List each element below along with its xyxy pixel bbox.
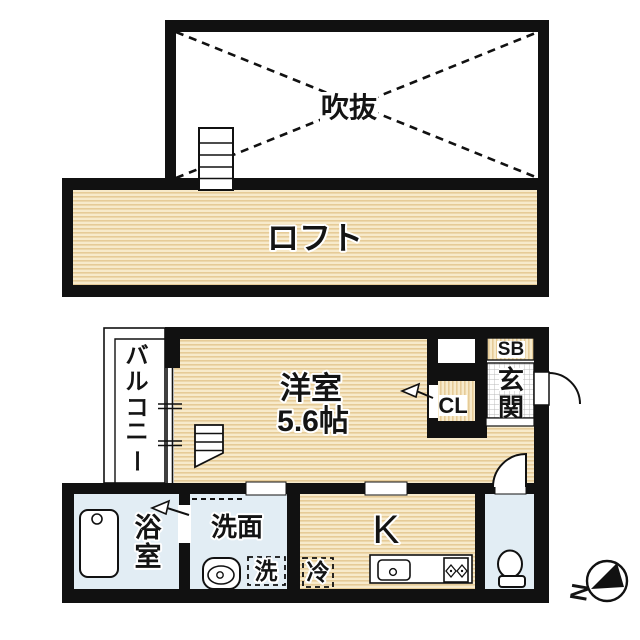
entrance-door-leaf xyxy=(534,372,549,405)
shoe-box: SB xyxy=(487,338,534,360)
bathroom-door-opening xyxy=(178,505,191,543)
entrance-step xyxy=(486,418,534,426)
washbasin-icon xyxy=(203,558,240,589)
floor-plan-canvas: 吹抜 ロフト 洋室 5.6帖 K 浴 室 洗面 xyxy=(0,0,640,640)
loft: ロフト xyxy=(62,178,549,297)
balcony-label-char2: ル xyxy=(126,368,149,394)
loft-label: ロフト xyxy=(267,220,363,256)
western-room: 洋室 5.6帖 xyxy=(174,339,427,483)
compass-north-label: N xyxy=(564,581,594,603)
bathroom-label-char1: 浴 xyxy=(135,513,163,543)
kitchen-counter xyxy=(370,555,472,583)
kitchen-label: K xyxy=(373,508,400,552)
bathroom-label-char2: 室 xyxy=(135,541,162,572)
closet-cl: CL xyxy=(438,381,475,421)
washroom-opening xyxy=(246,482,286,495)
closet-label: CL xyxy=(438,393,467,418)
entrance-door-arc xyxy=(549,373,580,404)
kitchen-opening xyxy=(365,482,407,495)
balcony-label-char5: ー xyxy=(124,450,150,473)
balcony-label-char1: バ xyxy=(126,342,149,368)
entrance-door xyxy=(534,372,580,405)
shoe-box-label: SB xyxy=(498,339,524,360)
void-label: 吹抜 xyxy=(321,92,378,123)
sink-icon xyxy=(378,560,410,580)
bathtub-icon xyxy=(80,510,118,577)
western-room-label: 洋室 xyxy=(280,371,342,406)
washer-label: 洗 xyxy=(255,558,278,584)
stove-icon xyxy=(444,558,468,582)
closet-opening xyxy=(429,385,438,418)
fridge-label: 冷 xyxy=(307,559,330,585)
loft-ladder-icon xyxy=(199,128,233,190)
washroom-label: 洗面 xyxy=(211,512,263,542)
balcony: バ ル コ ニ ー xyxy=(104,328,165,483)
alcove-floor xyxy=(438,339,475,363)
entrance: 玄 関 xyxy=(486,363,534,426)
balcony-label-char4: ニ xyxy=(126,418,149,444)
western-room-size-label: 5.6帖 xyxy=(277,405,349,438)
entrance-label-char1: 玄 xyxy=(498,365,524,395)
floor-plan-page: 吹抜 ロフト 洋室 5.6帖 K 浴 室 洗面 xyxy=(0,0,640,640)
fridge-space: 冷 xyxy=(303,558,333,587)
compass: N xyxy=(564,561,627,603)
alcove xyxy=(438,339,475,363)
balcony-label-char3: コ xyxy=(126,394,149,420)
